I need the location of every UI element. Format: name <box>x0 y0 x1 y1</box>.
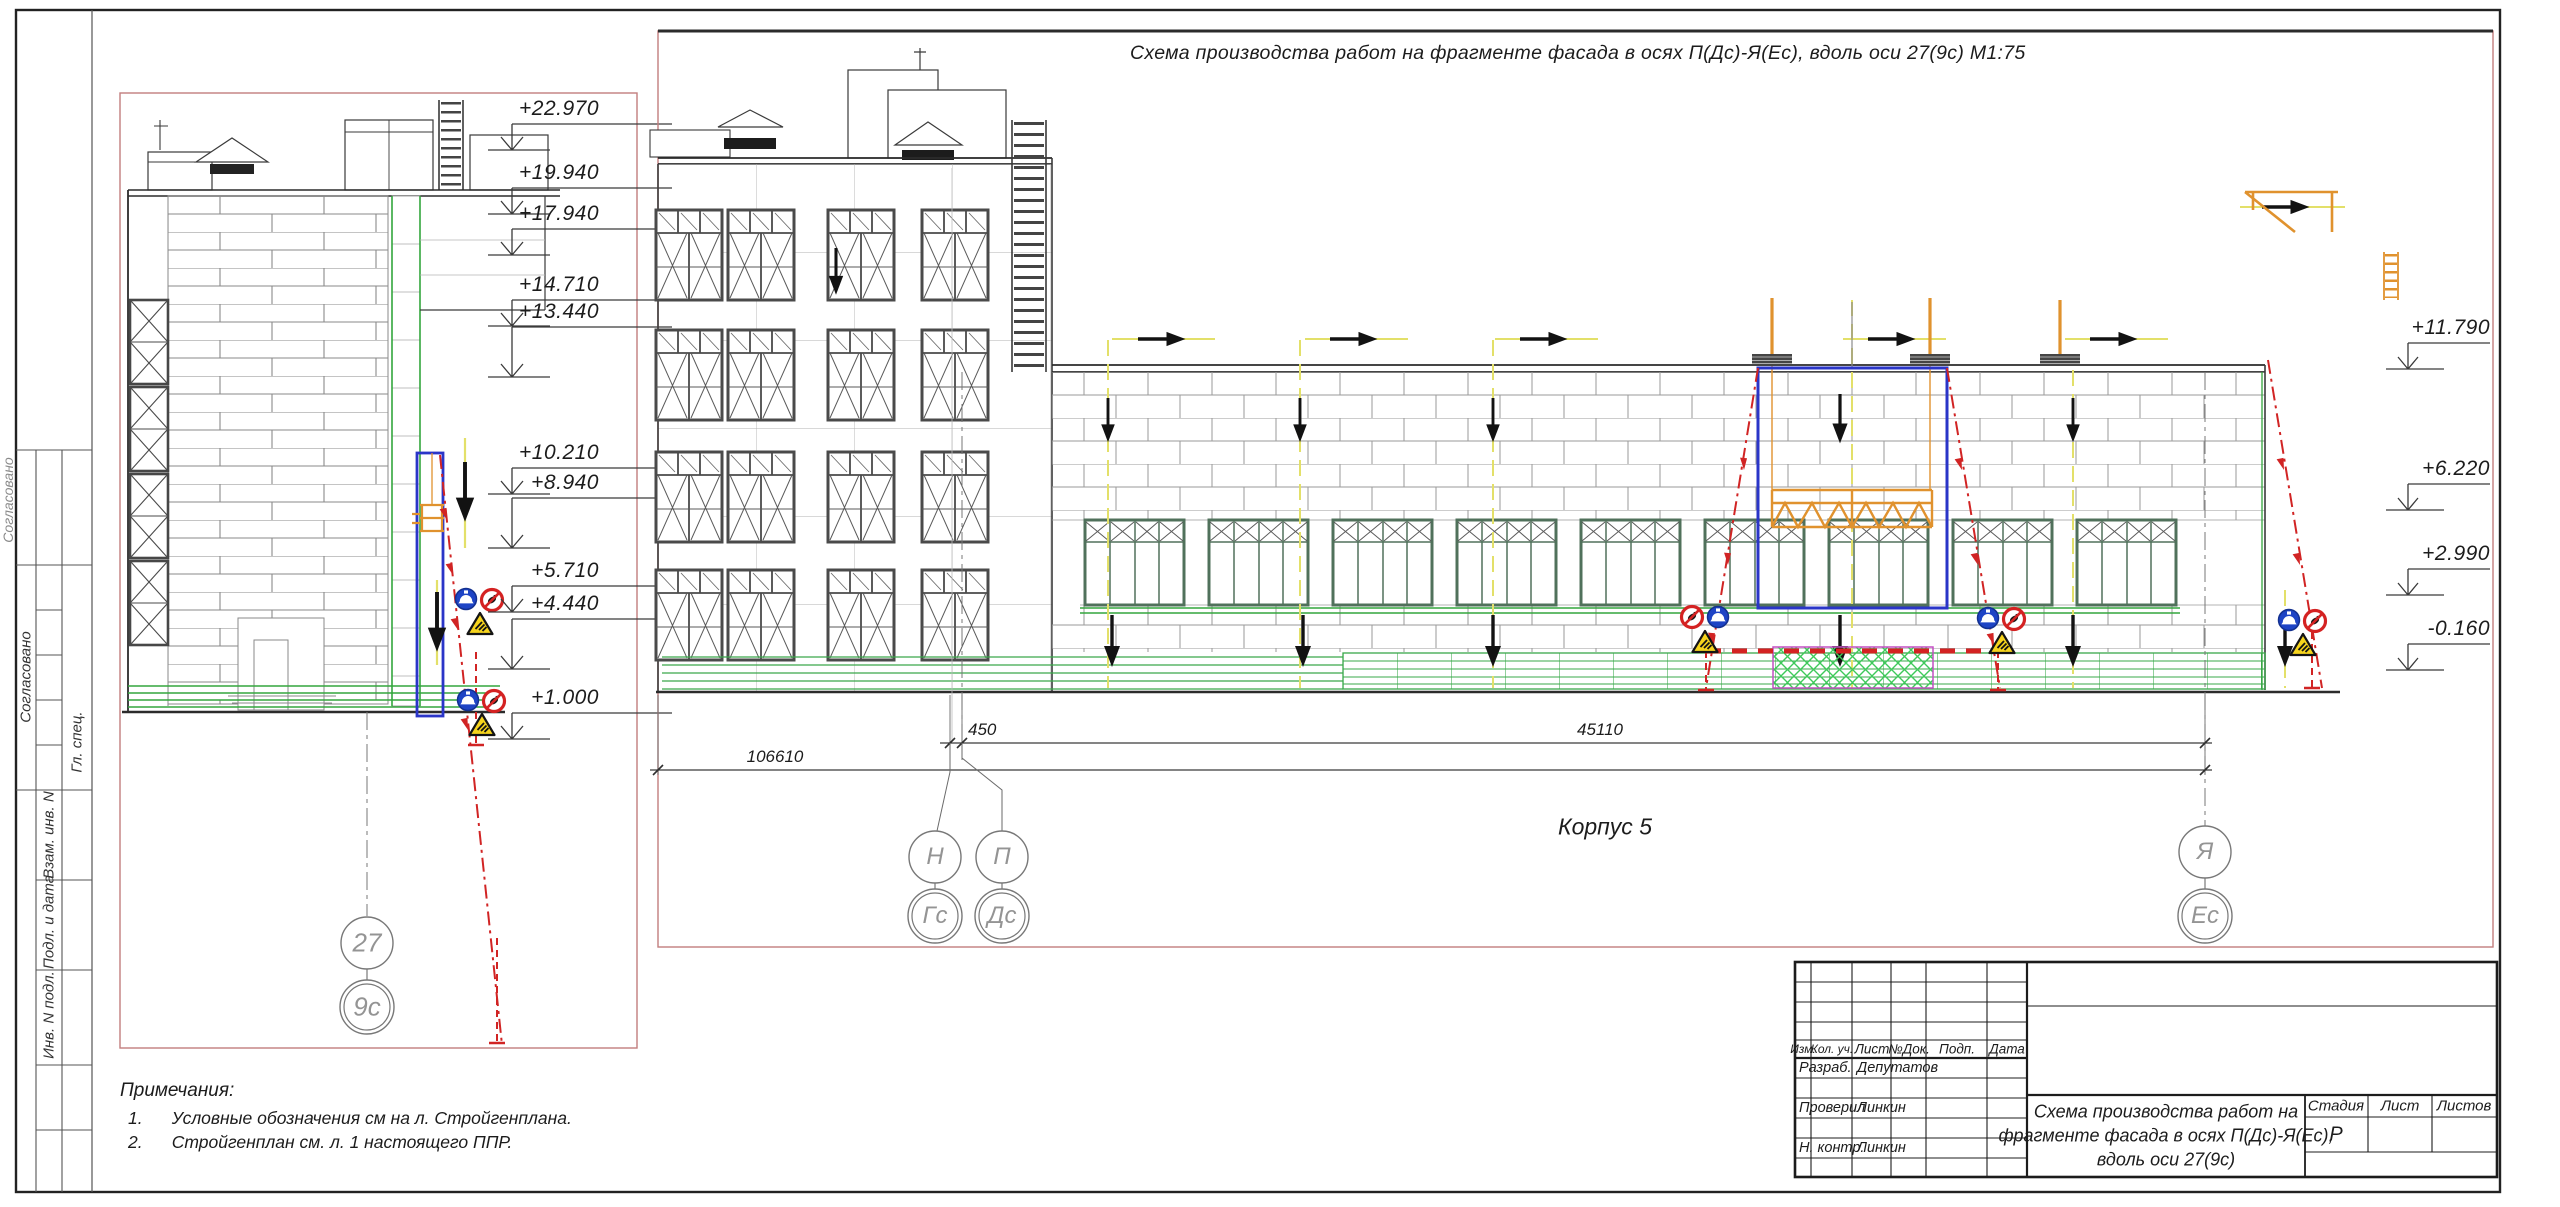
axis-label: 9с <box>353 992 380 1023</box>
cradle-zone-rect <box>417 453 443 716</box>
side-label-replace-inv: Взам. инв. N <box>41 791 58 878</box>
fragment-roof-structures <box>128 100 560 196</box>
elevation-label: +22.970 <box>519 97 599 121</box>
axis-label: Я <box>2197 838 2213 866</box>
elevation-label: +11.790 <box>2412 316 2490 340</box>
axis-label: Гс <box>922 902 947 930</box>
dimension-value: 450 <box>968 720 996 740</box>
main-panel-drawing <box>650 31 2493 947</box>
stamp-name: Линкин <box>1857 1100 1906 1116</box>
danger-zone-boundary <box>440 455 502 1045</box>
stamp-role: Разраб. <box>1799 1060 1851 1076</box>
axis-label: Дс <box>988 902 1017 930</box>
drawing-title: Схема производства работ на фрагменте фа… <box>1130 42 2026 65</box>
stamp-col-ndok: №Док. <box>1888 1042 1930 1057</box>
building-label: Корпус 5 <box>1558 814 1652 841</box>
elevation-label: +1.000 <box>531 686 599 710</box>
elevation-label: +5.710 <box>531 559 599 583</box>
side-label-sign-date: Подл. и дата <box>41 875 58 969</box>
dimension-value: 106610 <box>747 747 804 767</box>
stamp-col-list: Лист <box>1855 1042 1890 1057</box>
side-label-chief: Гл. спец. <box>69 711 86 772</box>
stamp-stage-label: Стадия <box>2308 1098 2364 1115</box>
elevation-label: +14.710 <box>519 273 599 297</box>
stamp-sheet-label: Лист <box>2381 1098 2420 1115</box>
stamp-col-data: Дата <box>1989 1042 2025 1057</box>
stamp-name: Линкин <box>1857 1140 1906 1156</box>
drawing-sheet: Схема производства работ на фрагменте фа… <box>0 0 2560 1207</box>
stamp-sheets-label: Листов <box>2437 1098 2492 1115</box>
elevation-label: +4.440 <box>531 592 599 616</box>
note-item: 2. Стройгенплан см. л. 1 настоящего ППР. <box>128 1132 512 1153</box>
stamp-doc-title-line: вдоль оси 27(9с) <box>2097 1150 2235 1171</box>
elevation-label: -0.160 <box>2427 617 2490 641</box>
elevation-label: +10.210 <box>519 441 599 465</box>
side-label-approved-outer: Согласовано <box>0 457 16 542</box>
note-item: 1. Условные обозначения см на л. Стройге… <box>128 1108 572 1129</box>
four-storey-building <box>650 48 1052 693</box>
stamp-doc-title-line: Схема производства работ на <box>2034 1102 2298 1123</box>
dimension-value: 45110 <box>1577 720 1623 740</box>
stamp-col-kol: Кол. уч. <box>1811 1042 1853 1056</box>
side-label-approved: Согласовано <box>18 631 35 723</box>
axis-label: Ес <box>2191 902 2219 930</box>
stamp-col-podp: Подп. <box>1939 1042 1975 1057</box>
elevation-label: +17.940 <box>519 202 599 226</box>
stamp-name: Депутатов <box>1857 1060 1938 1076</box>
axis-label: 27 <box>353 928 382 959</box>
stamp-doc-title-line: фрагменте фасада в осях П(Дс)-Я(Ес), <box>1998 1126 2333 1147</box>
fragment-work-zone <box>412 438 505 1045</box>
safety-signs <box>456 589 503 635</box>
drawing-canvas <box>0 0 2560 1207</box>
axis-label: П <box>993 843 1010 871</box>
fragment-axis <box>340 712 394 1034</box>
elevation-label: +13.440 <box>519 300 599 324</box>
elevation-label: +8.940 <box>531 471 599 495</box>
side-label-inv-orig: Инв. N подл. <box>41 971 58 1059</box>
stamp-role: Проверил <box>1799 1100 1865 1116</box>
axis-label: Н <box>926 843 943 871</box>
elevation-label: +19.940 <box>519 161 599 185</box>
stamp-stage-value: Р <box>2329 1124 2342 1147</box>
stamp-role: Н. контр. <box>1799 1140 1864 1156</box>
elevation-label: +2.990 <box>2422 542 2490 566</box>
notes-heading: Примечания: <box>120 1080 234 1102</box>
elevation-label: +6.220 <box>2422 457 2490 481</box>
